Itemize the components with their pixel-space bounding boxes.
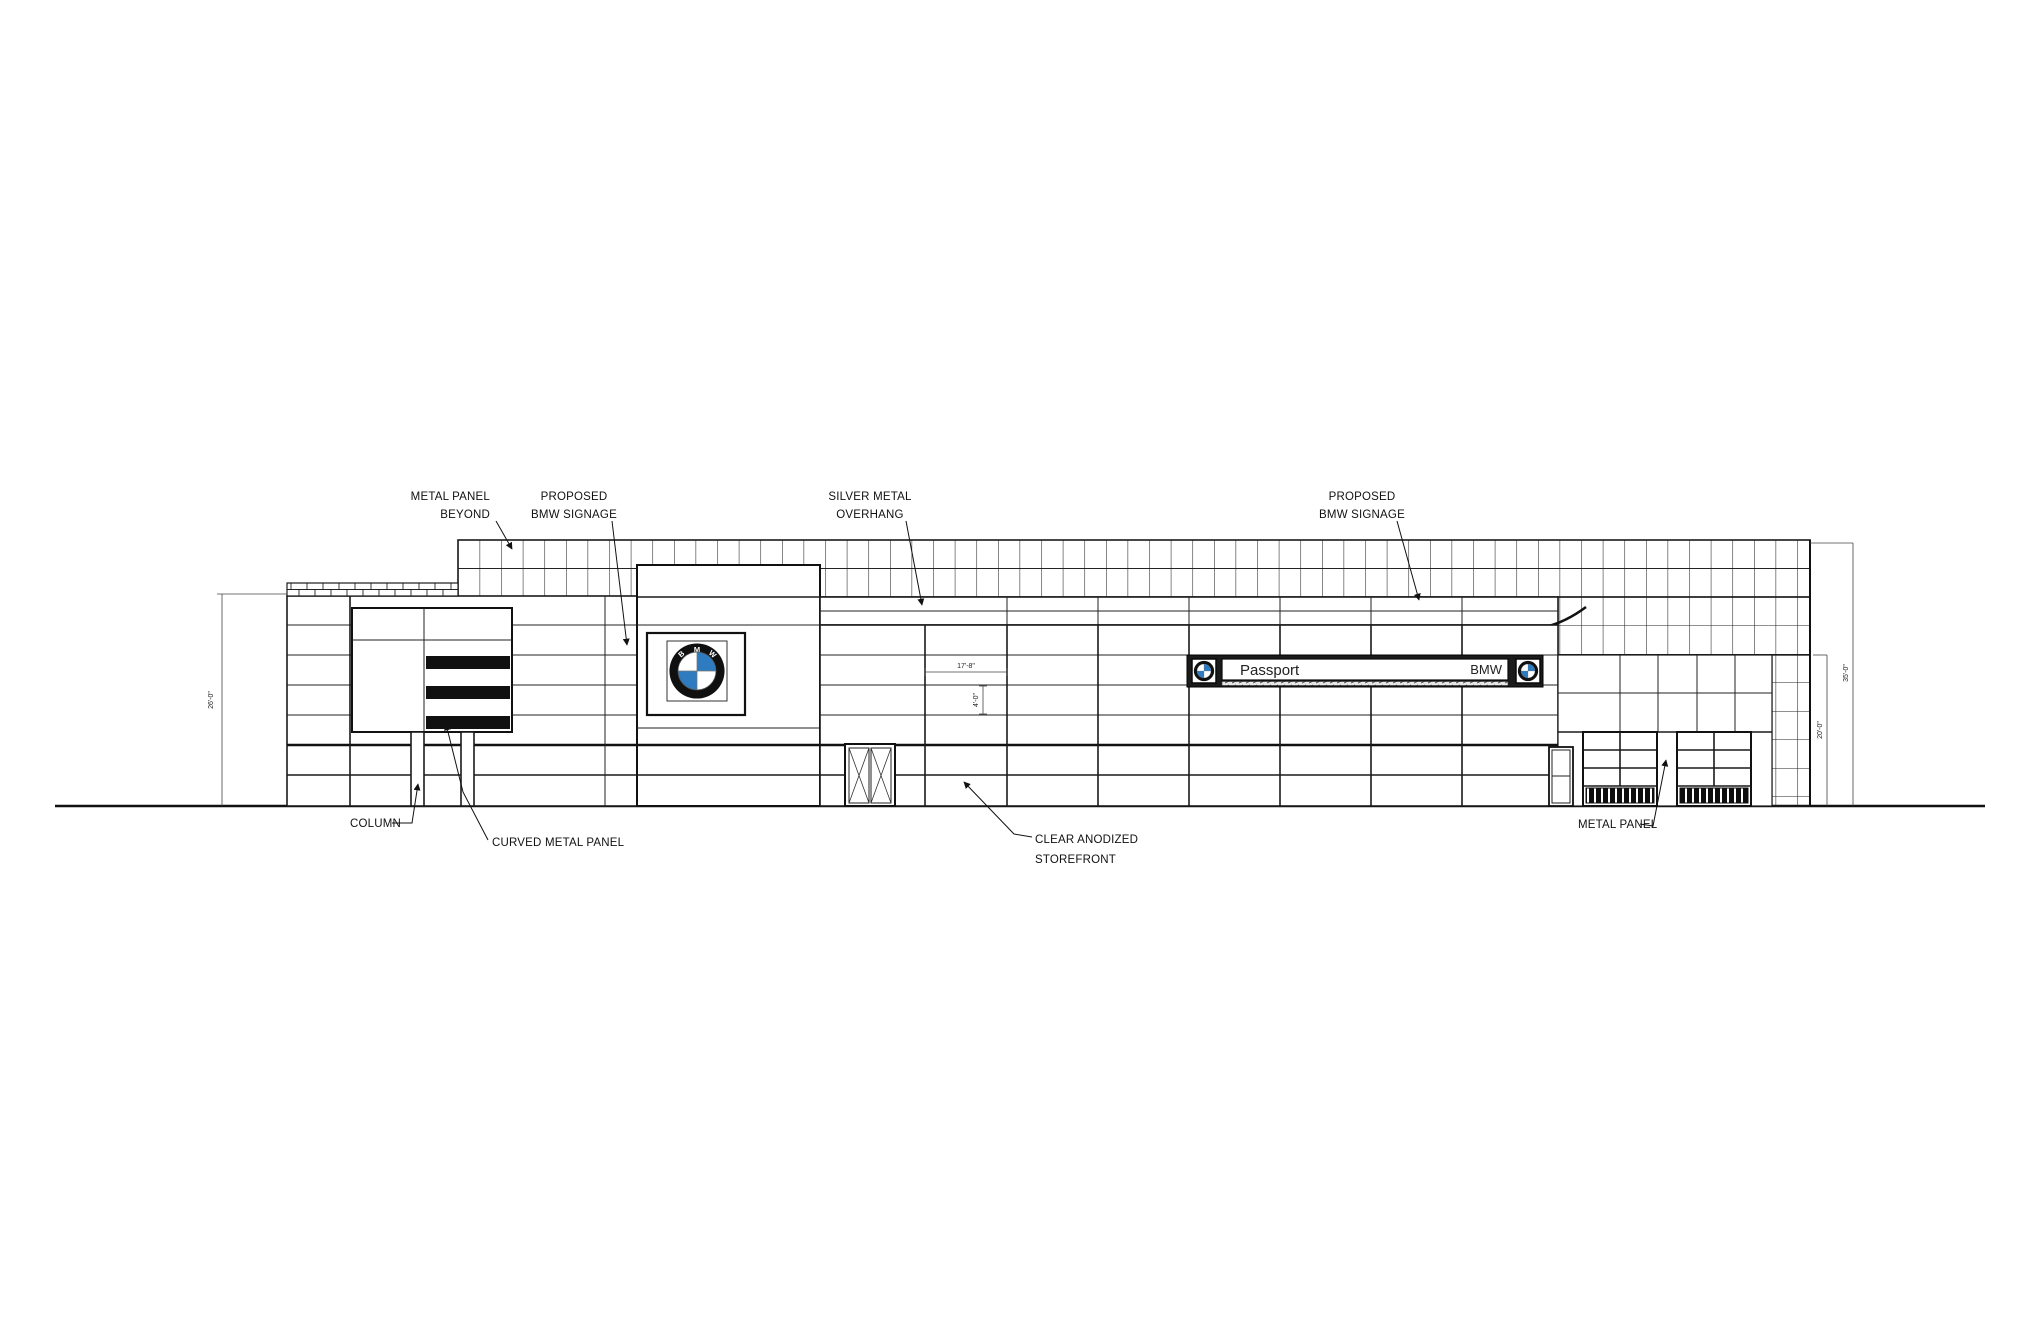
- svg-text:SILVER METAL: SILVER METAL: [828, 491, 912, 503]
- svg-text:BMW SIGNAGE: BMW SIGNAGE: [1319, 509, 1405, 521]
- svg-text:BMW SIGNAGE: BMW SIGNAGE: [531, 509, 617, 521]
- svg-text:BEYOND: BEYOND: [440, 509, 490, 521]
- column-left: [411, 732, 424, 806]
- dimension-right-lower-height: 20'-0": [1813, 655, 1827, 806]
- dimension-left-height: 26'-0": [208, 594, 287, 806]
- svg-text:COLUMN: COLUMN: [350, 818, 401, 830]
- passport-bmw-sign: Passport BMW: [1187, 655, 1543, 687]
- svg-text:PROPOSED: PROPOSED: [541, 491, 608, 503]
- showroom-face: [820, 625, 1558, 806]
- service-door: [1549, 747, 1573, 806]
- metal-louver-panel-2: [1677, 732, 1751, 806]
- svg-text:26'-0": 26'-0": [208, 691, 215, 709]
- svg-text:STOREFRONT: STOREFRONT: [1035, 854, 1116, 866]
- louver-bars: [426, 656, 510, 729]
- sign-roundel-left: [1194, 661, 1214, 681]
- brand-text: BMW: [1470, 662, 1503, 677]
- entry-double-door: [845, 744, 895, 806]
- dimension-right-overall-height: 35'-0": [1810, 543, 1853, 806]
- bmw-logo-sign: B M W: [647, 633, 745, 715]
- elevation-drawing: B M W: [0, 0, 2040, 1320]
- column-right: [461, 732, 474, 806]
- elevation-sheet: B M W: [0, 0, 2040, 1320]
- metal-louver-panel-1: [1583, 732, 1657, 806]
- svg-text:METAL PANEL: METAL PANEL: [411, 491, 491, 503]
- svg-text:20'-0": 20'-0": [1817, 721, 1824, 739]
- bmw-letter-m: M: [694, 645, 700, 654]
- svg-text:OVERHANG: OVERHANG: [836, 509, 903, 521]
- dealer-name-text: Passport: [1240, 662, 1300, 679]
- entry-tower: B M W: [637, 565, 820, 806]
- svg-text:CLEAR ANODIZED: CLEAR ANODIZED: [1035, 834, 1138, 846]
- curved-metal-panel: [352, 608, 512, 732]
- silver-metal-overhang: [820, 597, 1586, 627]
- sign-roundel-right: [1518, 661, 1538, 681]
- svg-text:CURVED METAL PANEL: CURVED METAL PANEL: [492, 837, 625, 849]
- brick-parapet-band: [287, 583, 458, 596]
- svg-text:35'-0": 35'-0": [1843, 664, 1850, 682]
- svg-text:PROPOSED: PROPOSED: [1329, 491, 1396, 503]
- svg-text:4'-0": 4'-0": [973, 693, 980, 707]
- svg-text:17'-8": 17'-8": [957, 663, 975, 670]
- left-building-block: [287, 583, 640, 806]
